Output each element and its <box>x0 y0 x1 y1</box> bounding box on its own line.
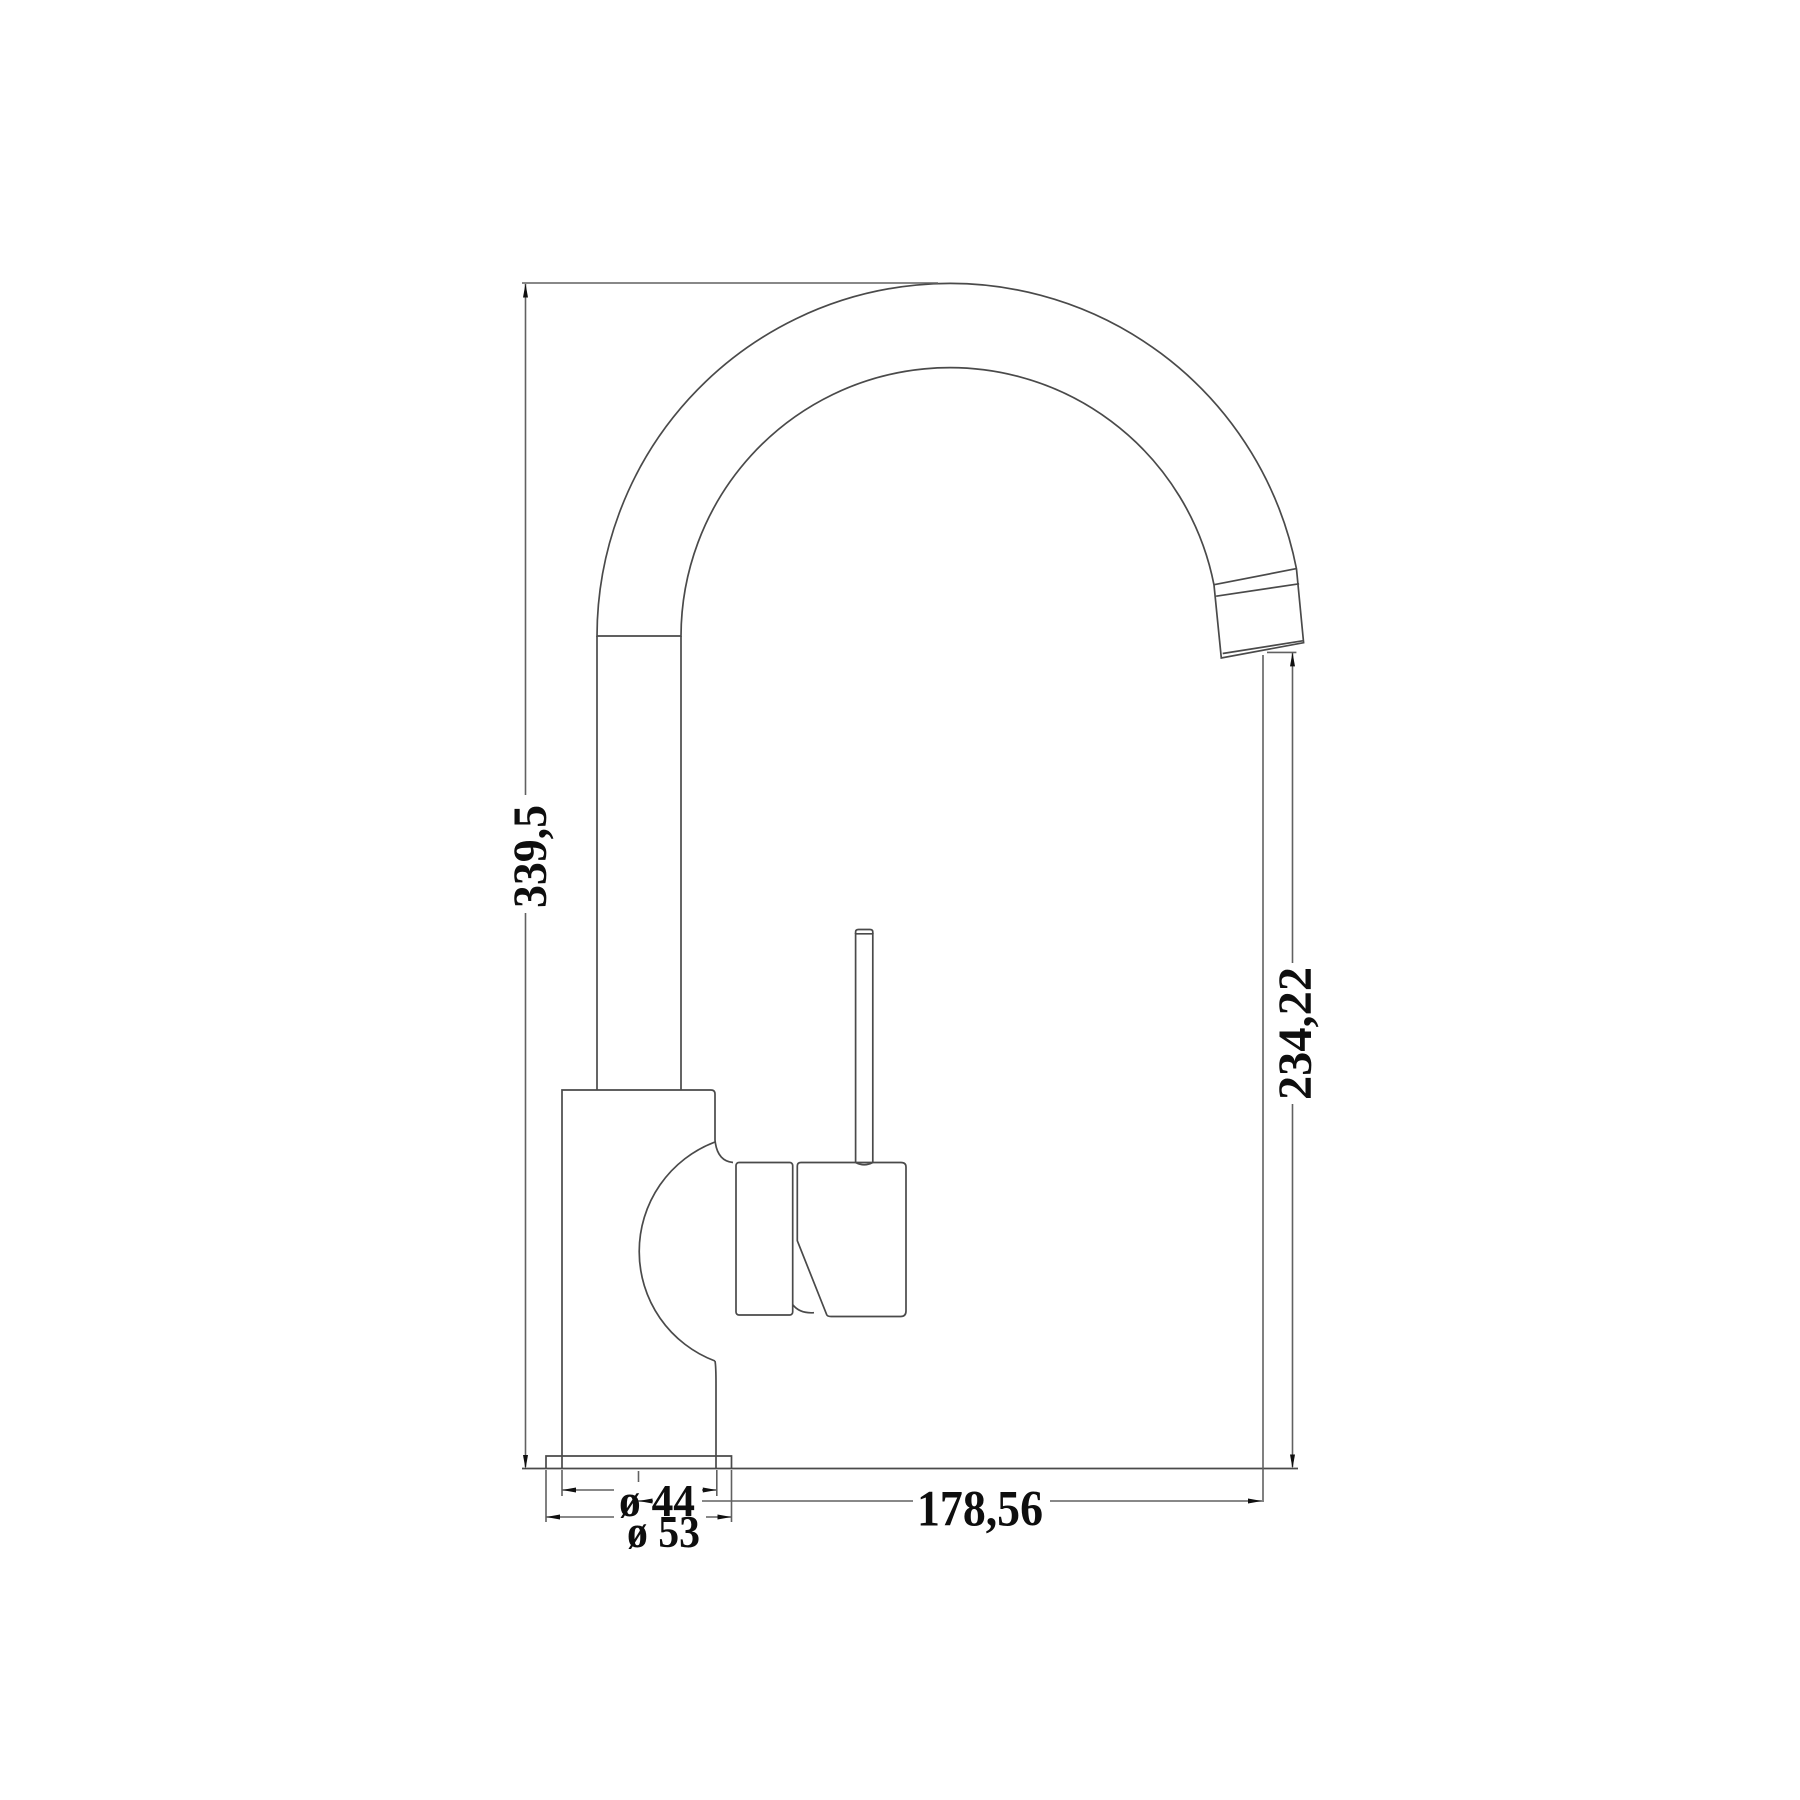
svg-text:178,56: 178,56 <box>917 1482 1043 1538</box>
svg-text:ø 53: ø 53 <box>627 1506 700 1557</box>
svg-text:234,22: 234,22 <box>1269 967 1322 1100</box>
svg-text:339,5: 339,5 <box>504 805 557 908</box>
